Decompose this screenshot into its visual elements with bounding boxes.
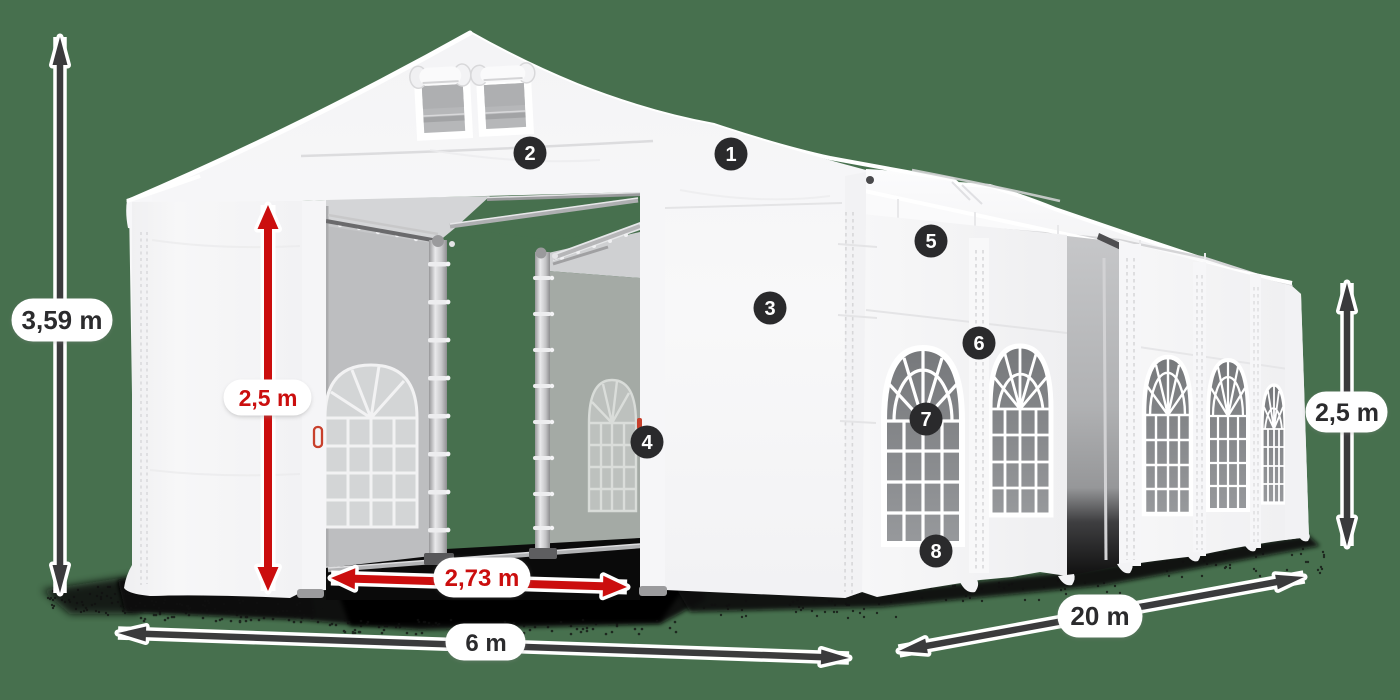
svg-text:7: 7 [920,409,931,431]
svg-text:2: 2 [524,143,535,165]
svg-text:3: 3 [764,298,775,320]
svg-text:2,73 m: 2,73 m [445,565,520,592]
svg-text:6 m: 6 m [465,630,506,657]
svg-text:2,5 m: 2,5 m [239,385,298,411]
svg-text:4: 4 [641,432,653,454]
svg-text:5: 5 [925,231,936,253]
svg-text:20 m: 20 m [1070,601,1129,631]
svg-text:6: 6 [973,333,984,355]
svg-text:2,5 m: 2,5 m [1315,399,1379,427]
svg-text:1: 1 [725,144,736,166]
svg-text:3,59 m: 3,59 m [22,305,103,335]
svg-text:8: 8 [930,541,941,563]
